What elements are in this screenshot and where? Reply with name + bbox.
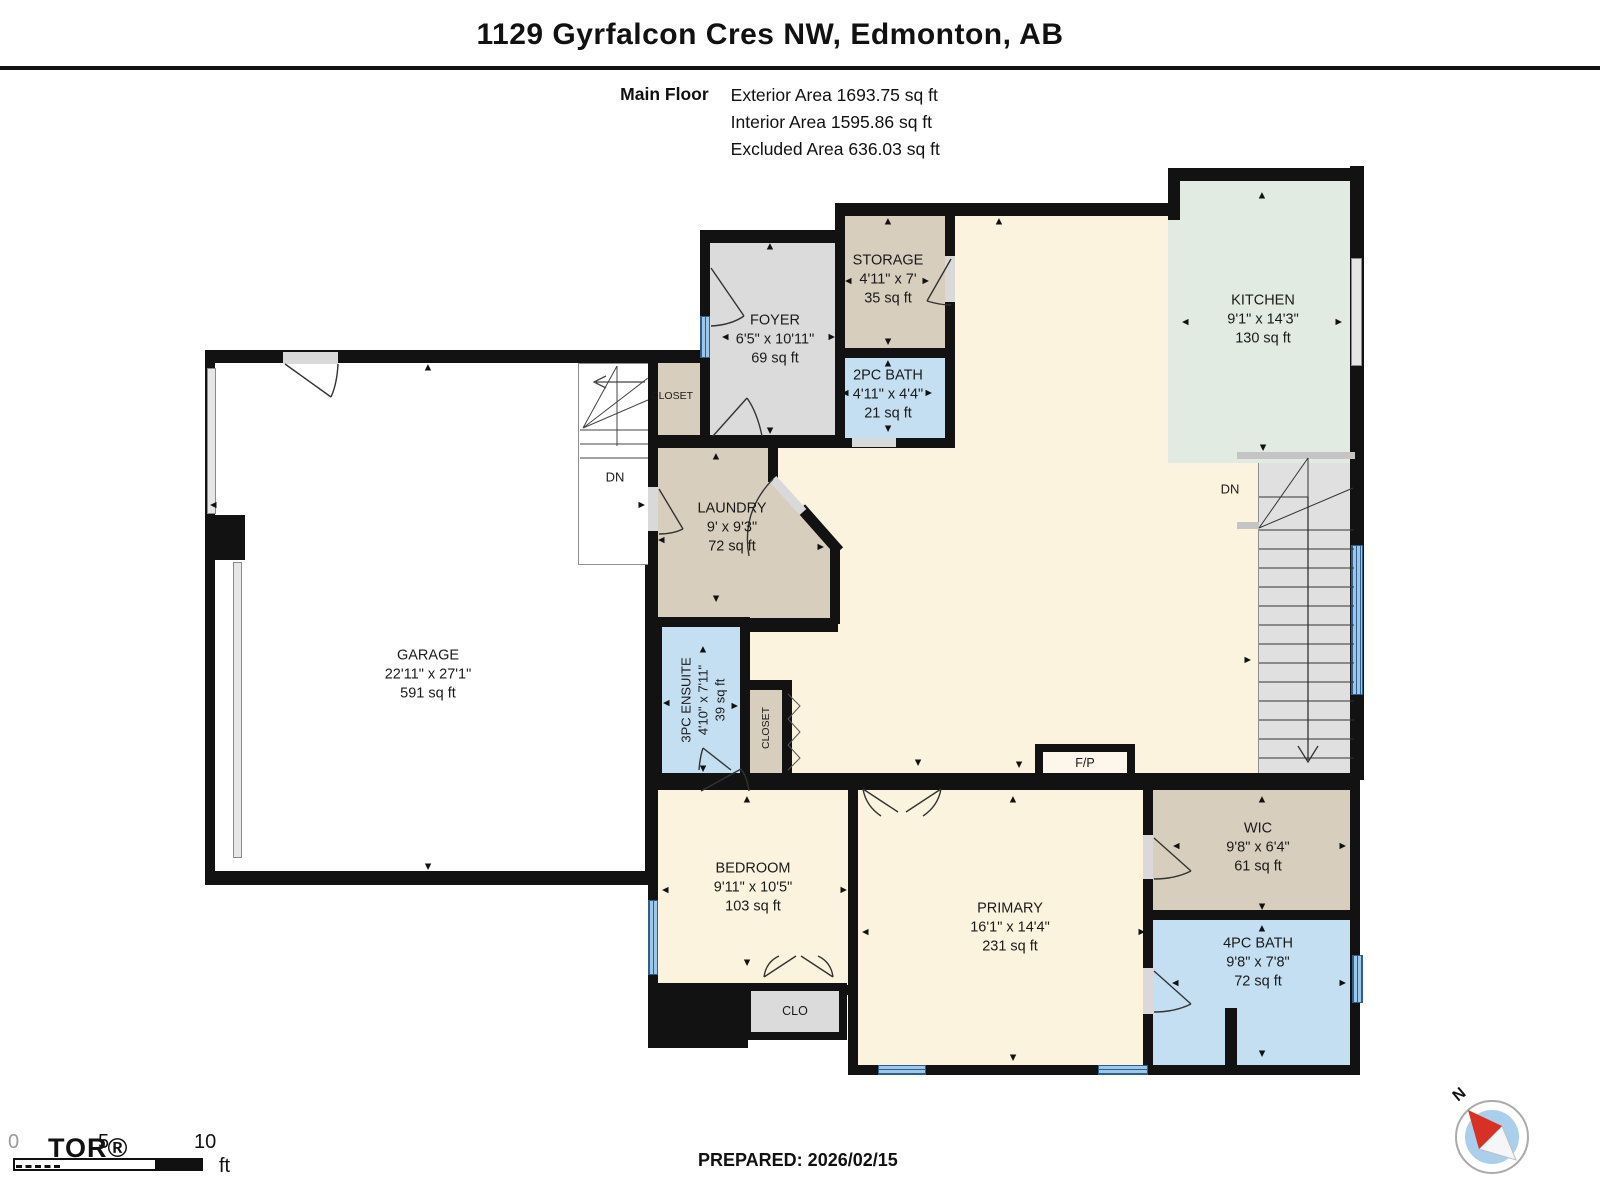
dimension-arrow: ▲ bbox=[209, 500, 220, 511]
label-fp: F/P bbox=[1075, 756, 1094, 770]
dimension-arrow: ▲ bbox=[765, 425, 776, 436]
dimension-arrow: ▲ bbox=[1257, 901, 1268, 912]
scale-bar-segment bbox=[155, 1158, 203, 1171]
label-closet: CLOSET bbox=[651, 390, 693, 402]
dimension-arrow: ▲ bbox=[883, 359, 894, 370]
label-clo: CLO bbox=[782, 1004, 808, 1018]
dimension-arrow: ▲ bbox=[1171, 978, 1182, 989]
room-dims: 9'8" x 7'8" bbox=[1223, 954, 1293, 973]
dimension-arrow: ▲ bbox=[1257, 924, 1268, 935]
room-area: 61 sq ft bbox=[1226, 858, 1289, 877]
prepared-date: PREPARED: 2026/02/15 bbox=[698, 1150, 898, 1171]
room-dims: 4'10" x 7'11" bbox=[695, 657, 712, 742]
wall-segment bbox=[768, 438, 778, 482]
dimension-arrow: ▲ bbox=[765, 242, 776, 253]
label-closet: CLOSET bbox=[760, 707, 772, 749]
room-garage-stairs bbox=[578, 363, 650, 565]
room-label-laundry: LAUNDRY9' x 9'3"72 sq ft bbox=[697, 500, 766, 557]
room-area: 21 sq ft bbox=[853, 405, 923, 424]
room-dims: 9'8" x 6'4" bbox=[1226, 839, 1289, 858]
room-stairs-down bbox=[1258, 455, 1355, 785]
dimension-arrow: ▲ bbox=[1008, 795, 1019, 806]
dimension-arrow: ▲ bbox=[994, 217, 1005, 228]
compass-icon: N bbox=[1450, 1085, 1528, 1173]
dimension-arrow: ▲ bbox=[1257, 191, 1268, 202]
window bbox=[1352, 955, 1363, 1003]
dimension-arrow: ▲ bbox=[1172, 841, 1183, 852]
window bbox=[700, 316, 710, 358]
dimension-arrow: ▲ bbox=[698, 763, 709, 774]
realtor-watermark: TOR® bbox=[48, 1133, 128, 1164]
dimension-arrow: ▲ bbox=[1257, 795, 1268, 806]
room-label-ensuite-3pc: 3PC ENSUITE4'10" x 7'11"39 sq ft bbox=[678, 657, 729, 742]
room-name: GARAGE bbox=[385, 647, 472, 666]
dimension-arrow: ▲ bbox=[742, 795, 753, 806]
dimension-arrow: ▲ bbox=[883, 336, 894, 347]
scale-tick-0: 0 bbox=[8, 1131, 19, 1154]
room-area: 231 sq ft bbox=[970, 938, 1050, 957]
scale-tick-10: 10 bbox=[194, 1131, 216, 1154]
label-dn: DN bbox=[1221, 482, 1240, 497]
compass-north-label: N bbox=[1450, 1085, 1470, 1105]
wall-segment bbox=[830, 548, 840, 624]
scale-bar: 0 5 10 TOR® ft bbox=[0, 1125, 260, 1185]
room-area: 69 sq ft bbox=[736, 350, 814, 369]
room-name: PRIMARY bbox=[970, 900, 1050, 919]
room-label-storage: STORAGE4'11" x 7'35 sq ft bbox=[853, 252, 924, 309]
dimension-arrow: ▲ bbox=[861, 927, 872, 938]
room-name: 4PC BATH bbox=[1223, 935, 1293, 954]
door-opening bbox=[945, 256, 955, 302]
floorplan-canvas: N GARAGE22'11" x 27'1"591 sq ftKITCHEN9'… bbox=[0, 0, 1600, 1188]
door-opening bbox=[283, 352, 338, 364]
room-name: STORAGE bbox=[853, 252, 924, 271]
room-label-primary: PRIMARY16'1" x 14'4"231 sq ft bbox=[970, 900, 1050, 957]
dimension-arrow: ▲ bbox=[1337, 978, 1348, 989]
window bbox=[878, 1065, 926, 1075]
room-dims: 4'11" x 4'4" bbox=[853, 386, 923, 405]
dimension-arrow: ▲ bbox=[1337, 841, 1348, 852]
dimension-arrow: ▲ bbox=[1242, 655, 1253, 666]
dimension-arrow: ▲ bbox=[661, 885, 672, 896]
room-name: KITCHEN bbox=[1227, 292, 1298, 311]
door-opening bbox=[852, 438, 896, 447]
room-area: 39 sq ft bbox=[712, 657, 729, 742]
dimension-arrow: ▲ bbox=[826, 332, 837, 343]
scale-unit: ft bbox=[219, 1155, 230, 1178]
label-dn: DN bbox=[606, 470, 625, 485]
door-opening bbox=[1143, 968, 1153, 1014]
wall-segment bbox=[1225, 1008, 1237, 1070]
room-area: 72 sq ft bbox=[697, 538, 766, 557]
dimension-arrow: ▲ bbox=[883, 423, 894, 434]
room-name: 3PC ENSUITE bbox=[678, 657, 695, 742]
door-opening bbox=[648, 487, 658, 531]
dimension-arrow: ▲ bbox=[883, 217, 894, 228]
room-dims: 9'1" x 14'3" bbox=[1227, 311, 1298, 330]
room-dims: 16'1" x 14'4" bbox=[970, 919, 1050, 938]
window bbox=[207, 368, 216, 514]
door-opening bbox=[1143, 835, 1153, 879]
dimension-arrow: ▲ bbox=[1258, 442, 1269, 453]
wall-segment bbox=[1168, 168, 1180, 220]
dimension-arrow: ▲ bbox=[662, 698, 673, 709]
dimension-arrow: ▲ bbox=[423, 861, 434, 872]
room-area: 35 sq ft bbox=[853, 290, 924, 309]
wall-segment bbox=[648, 773, 1360, 789]
dimension-arrow: ▲ bbox=[1257, 1048, 1268, 1059]
room-dims: 9'11" x 10'5" bbox=[714, 879, 792, 898]
room-area: 130 sq ft bbox=[1227, 330, 1298, 349]
room-name: WIC bbox=[1226, 820, 1289, 839]
room-dims: 6'5" x 10'11" bbox=[736, 331, 814, 350]
dimension-arrow: ▲ bbox=[423, 363, 434, 374]
dimension-arrow: ▲ bbox=[923, 388, 934, 399]
room-label-garage: GARAGE22'11" x 27'1"591 sq ft bbox=[385, 647, 472, 704]
dimension-arrow: ▲ bbox=[1136, 927, 1147, 938]
room-name: LAUNDRY bbox=[697, 500, 766, 519]
room-label-wic: WIC9'8" x 6'4"61 sq ft bbox=[1226, 820, 1289, 877]
room-dims: 9' x 9'3" bbox=[697, 519, 766, 538]
room-area: 72 sq ft bbox=[1223, 973, 1293, 992]
dimension-arrow: ▲ bbox=[711, 593, 722, 604]
window bbox=[1098, 1065, 1148, 1075]
room-label-bath-4pc: 4PC BATH9'8" x 7'8"72 sq ft bbox=[1223, 935, 1293, 992]
window bbox=[648, 900, 658, 975]
room-name: BEDROOM bbox=[714, 860, 792, 879]
dimension-arrow: ▲ bbox=[920, 276, 931, 287]
room-dims: 4'11" x 7' bbox=[853, 271, 924, 290]
dimension-arrow: ▲ bbox=[729, 701, 740, 712]
room-area: 591 sq ft bbox=[385, 685, 472, 704]
room-dims: 22'11" x 27'1" bbox=[385, 666, 472, 685]
room-label-foyer: FOYER6'5" x 10'11"69 sq ft bbox=[736, 312, 814, 369]
dimension-arrow: ▲ bbox=[815, 542, 826, 553]
room-label-bath-2pc: 2PC BATH4'11" x 4'4"21 sq ft bbox=[853, 367, 923, 424]
room-area: 103 sq ft bbox=[714, 898, 792, 917]
dimension-arrow: ▲ bbox=[841, 388, 852, 399]
dimension-arrow: ▲ bbox=[838, 885, 849, 896]
wall-segment bbox=[205, 515, 245, 560]
dimension-arrow: ▲ bbox=[742, 957, 753, 968]
dimension-arrow: ▲ bbox=[657, 535, 668, 546]
dimension-arrow: ▲ bbox=[711, 452, 722, 463]
window bbox=[1351, 545, 1363, 695]
wall-segment bbox=[1237, 522, 1259, 529]
room-label-kitchen: KITCHEN9'1" x 14'3"130 sq ft bbox=[1227, 292, 1298, 349]
wall-segment bbox=[648, 983, 748, 1048]
dimension-arrow: ▲ bbox=[1333, 317, 1344, 328]
window bbox=[1351, 258, 1362, 366]
room-name: FOYER bbox=[736, 312, 814, 331]
dimension-arrow: ▲ bbox=[1014, 759, 1025, 770]
scale-bar-dashes bbox=[16, 1165, 60, 1168]
dimension-arrow: ▲ bbox=[1181, 317, 1192, 328]
dimension-arrow: ▲ bbox=[1008, 1052, 1019, 1063]
dimension-arrow: ▲ bbox=[844, 276, 855, 287]
window bbox=[233, 562, 242, 858]
dimension-arrow: ▲ bbox=[913, 757, 924, 768]
wall-segment bbox=[1237, 452, 1355, 459]
dimension-arrow: ▲ bbox=[721, 332, 732, 343]
dimension-arrow: ▲ bbox=[698, 645, 709, 656]
dimension-arrow: ▲ bbox=[636, 500, 647, 511]
floorplan-page: 1129 Gyrfalcon Cres NW, Edmonton, AB Mai… bbox=[0, 0, 1600, 1188]
room-label-bedroom: BEDROOM9'11" x 10'5"103 sq ft bbox=[714, 860, 792, 917]
